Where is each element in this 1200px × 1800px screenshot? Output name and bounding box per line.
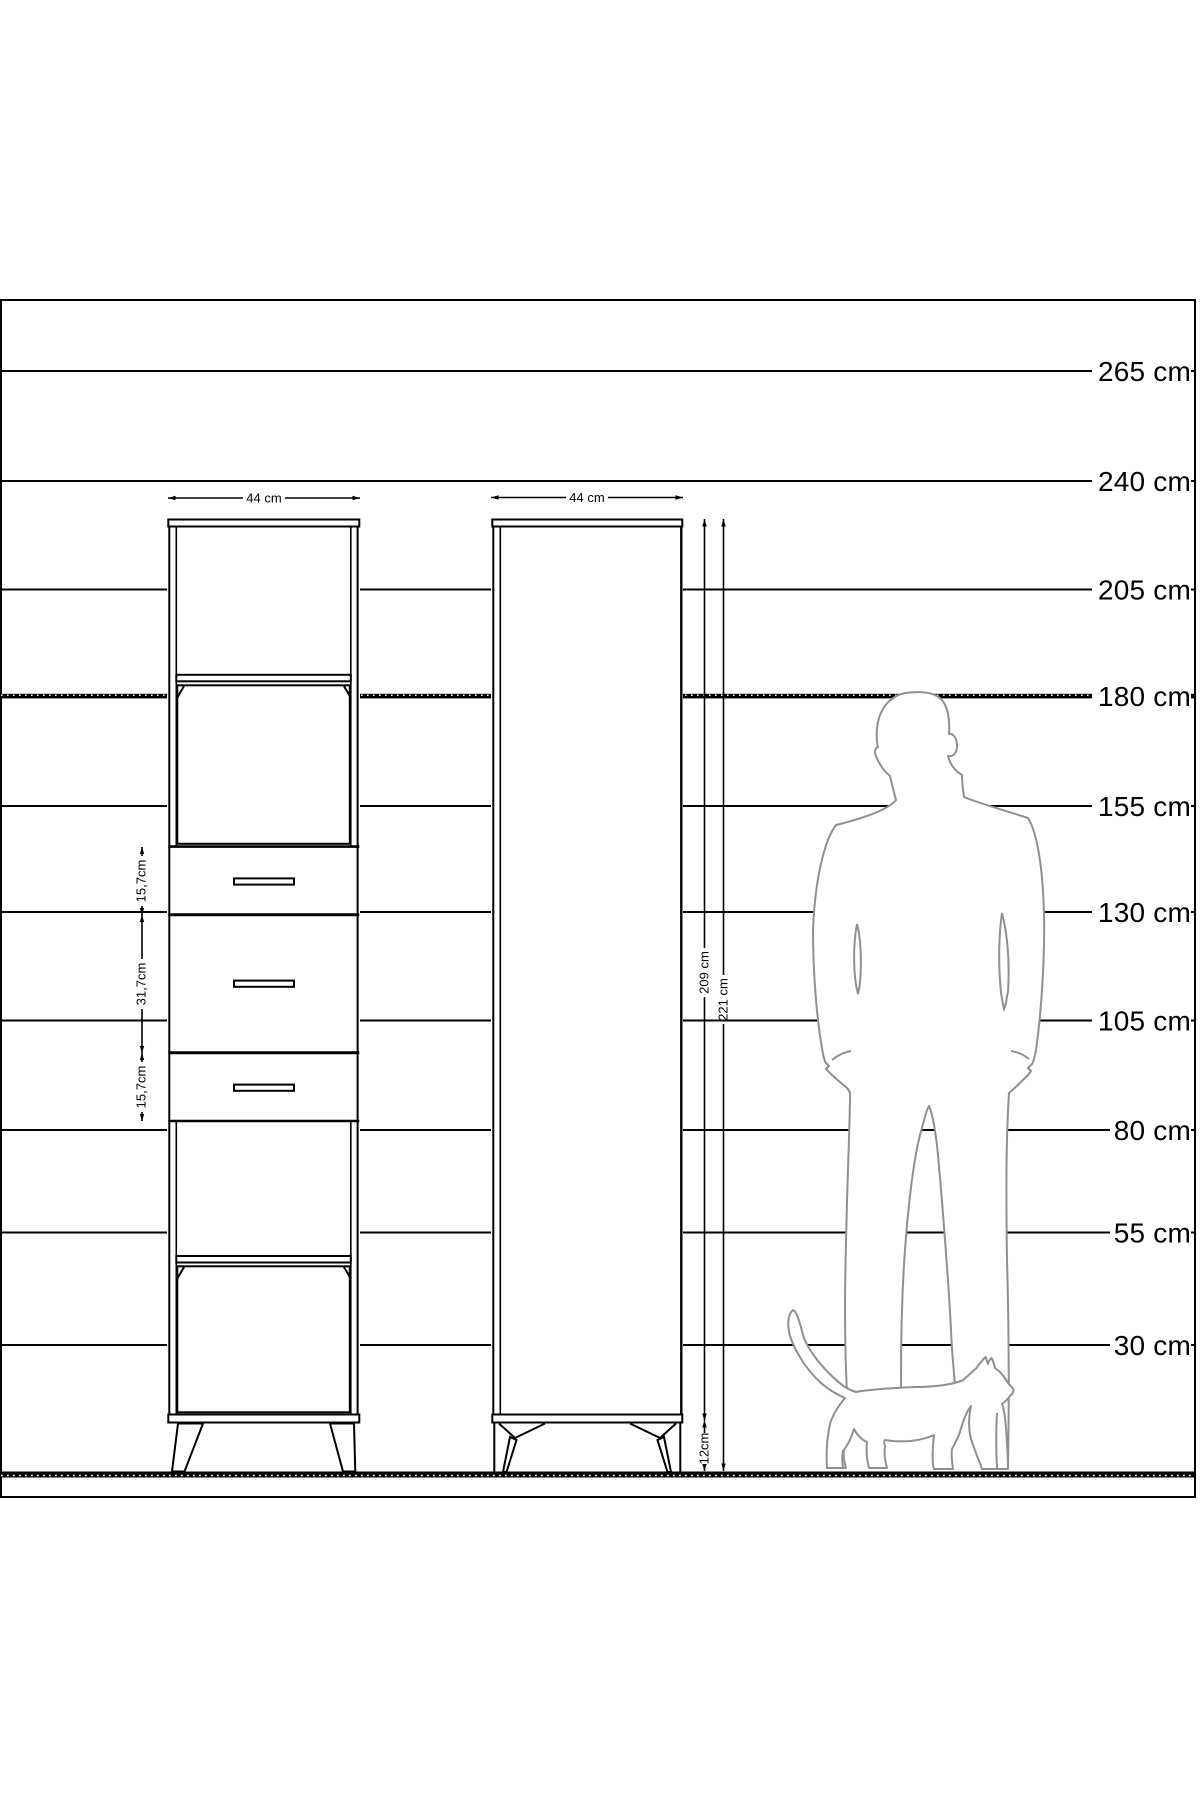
svg-text:44 cm: 44 cm [569, 490, 604, 505]
svg-text:31,7cm: 31,7cm [134, 963, 149, 1006]
svg-text:180 cm: 180 cm [1098, 681, 1191, 712]
svg-text:209 cm: 209 cm [697, 951, 712, 994]
svg-text:12cm: 12cm [697, 1433, 712, 1465]
svg-text:240 cm: 240 cm [1098, 466, 1191, 497]
svg-text:205 cm: 205 cm [1098, 575, 1191, 606]
svg-text:44 cm: 44 cm [246, 491, 281, 506]
svg-text:155 cm: 155 cm [1098, 791, 1191, 822]
svg-text:265 cm: 265 cm [1098, 356, 1191, 387]
svg-text:15,7cm: 15,7cm [134, 860, 149, 903]
svg-text:130 cm: 130 cm [1098, 897, 1191, 928]
svg-text:55 cm: 55 cm [1114, 1218, 1191, 1249]
svg-text:80 cm: 80 cm [1114, 1115, 1191, 1146]
svg-text:15,7cm: 15,7cm [134, 1066, 149, 1109]
svg-text:221 cm: 221 cm [716, 978, 731, 1021]
svg-text:105 cm: 105 cm [1098, 1006, 1191, 1037]
svg-text:30 cm: 30 cm [1114, 1330, 1191, 1361]
